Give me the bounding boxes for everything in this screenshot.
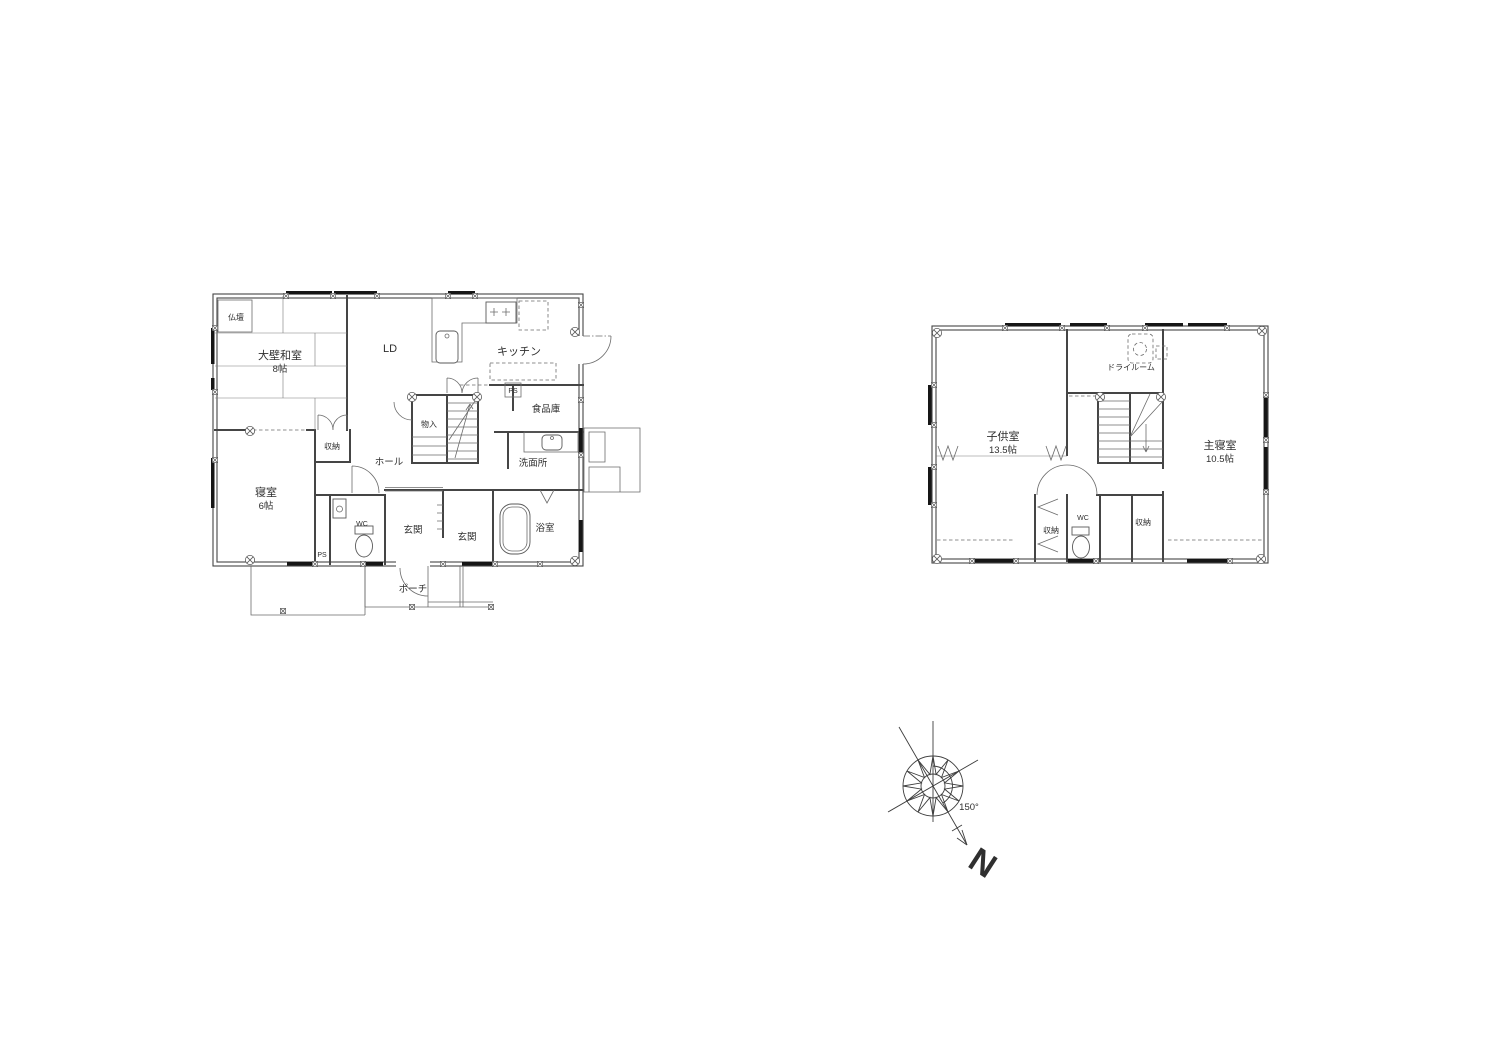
kitchen-door-gap [578, 336, 588, 364]
ps-wc-label: PS [317, 552, 327, 559]
shuno-label: 収納 [324, 441, 340, 451]
stairs-double-door [447, 378, 478, 393]
washroom-basin [542, 435, 562, 450]
toilet-bowl-1f [356, 535, 373, 557]
hall-label: ホール [375, 457, 404, 468]
bath-label: 浴室 [535, 522, 554, 534]
genkan-inner-label: 玄関 [403, 524, 422, 536]
equipment-pad [584, 428, 640, 492]
toilet-bowl-2f [1073, 536, 1090, 558]
kitchen-sink [436, 331, 458, 363]
floorplan-canvas: 仏壇 大壁和室 8帖 LD キッチン 食品庫 PS 物入 ホール 洗面所 収納 … [0, 0, 1500, 1060]
stove [486, 302, 516, 323]
kids-room-size-label: 13.5帖 [989, 444, 1017, 456]
compass-rose: 150° N [888, 721, 1003, 886]
washer-side-unit [1156, 346, 1167, 359]
monoire-label: 物入 [421, 419, 437, 429]
floor2-plan: 子供室 13.5帖 ドライルーム 主寝室 10.5帖 収納 WC 収納 [928, 323, 1269, 564]
closet-right-label: 収納 [1135, 517, 1151, 527]
bedroom-door [352, 466, 379, 493]
butsudan-label: 仏壇 [228, 312, 244, 322]
bedroom-size-label: 6帖 [259, 500, 274, 512]
wc-label-1f: WC [356, 521, 368, 528]
entry-door-gap [396, 561, 430, 570]
wc-label-2f: WC [1077, 515, 1089, 522]
north-arrow-head [952, 825, 967, 845]
refrigerator-space [519, 301, 548, 330]
kitchen-label: キッチン [497, 345, 541, 358]
floor1-plan: 仏壇 大壁和室 8帖 LD キッチン 食品庫 PS 物入 ホール 洗面所 収納 … [211, 291, 640, 615]
kids-room-door-arc [1037, 465, 1097, 495]
floorplan-sheet: 仏壇 大壁和室 8帖 LD キッチン 食品庫 PS 物入 ホール 洗面所 収納 … [0, 0, 1500, 1060]
pantry-label: 食品庫 [532, 403, 561, 415]
monoire-door [394, 402, 412, 420]
toilet-tank-2f [1072, 527, 1089, 535]
genkan-outer-label: 玄関 [457, 531, 476, 543]
floor1-fixtures [333, 298, 578, 557]
north-label: N [962, 841, 1003, 886]
washitsu-size-label: 8帖 [273, 363, 288, 375]
porch-outline [365, 566, 493, 607]
washer-space [1128, 334, 1153, 363]
ps-pantry-label: PS [508, 388, 518, 395]
compass-angle-label: 150° [959, 802, 979, 813]
senmenjo-label: 洗面所 [519, 457, 548, 469]
wc-basin [333, 499, 346, 518]
dry-room-label: ドライルーム [1107, 363, 1155, 372]
master-bedroom-size-label: 10.5帖 [1206, 453, 1234, 465]
floor1-dashed-lines [253, 385, 490, 430]
washer-drum [1134, 343, 1147, 356]
deck-outline [251, 566, 365, 615]
master-bedroom-label: 主寝室 [1204, 438, 1237, 452]
closet-left-label: 収納 [1043, 525, 1059, 535]
bath-fold-door [540, 490, 554, 503]
partition-w-mark-left [938, 446, 958, 460]
porch-label: ポーチ [399, 584, 428, 595]
bedroom-label: 寝室 [255, 485, 277, 499]
partition-w-mark-right [1046, 446, 1066, 460]
ld-label: LD [383, 343, 397, 355]
kitchen-cupboard [490, 363, 556, 380]
washitsu-closet-doors [318, 415, 347, 430]
genkan-step-lines [385, 488, 443, 530]
washitsu-label: 大壁和室 [258, 348, 302, 362]
kids-room-label: 子供室 [987, 429, 1020, 443]
